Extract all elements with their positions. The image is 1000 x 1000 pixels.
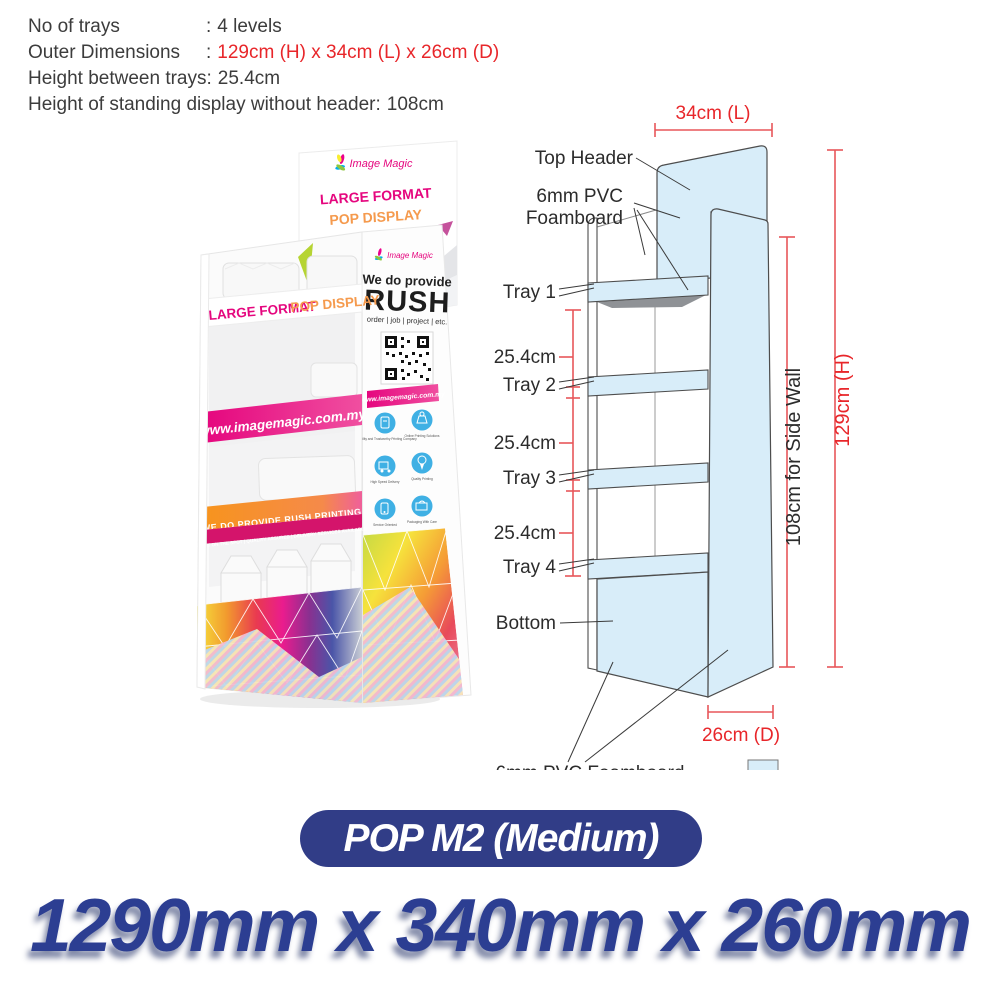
diagram-svg: 34cm (L) Top Header 6mm PVC Foamboard Tr… xyxy=(480,90,900,770)
spec-row-standing-height: Height of standing display without heade… xyxy=(28,92,499,118)
legend: Printable Area xyxy=(748,760,900,770)
spec-separator: : xyxy=(206,14,211,40)
depth-dimension-label: 26cm (D) xyxy=(702,725,780,746)
technical-diagram: 34cm (L) Top Header 6mm PVC Foamboard Tr… xyxy=(480,90,900,770)
side-wall-dimension-label: 108cm for Side Wall xyxy=(783,368,805,546)
legend-swatch xyxy=(748,760,778,770)
foamboard-label-line1: 6mm PVC xyxy=(536,186,623,207)
spec-row-outer-dimensions: Outer Dimensions : 129cm (H) x 34cm (L) … xyxy=(28,40,499,66)
height-dimension-label: 129cm (H) xyxy=(832,353,854,446)
width-dimension-label: 34cm (L) xyxy=(676,103,751,124)
feature-icon: Quality Printing xyxy=(411,453,433,482)
spec-label: Height of standing display without heade… xyxy=(28,92,376,118)
spec-row-trays: No of trays : 4 levels xyxy=(28,14,499,40)
tray-1-label: Tray 1 xyxy=(503,282,556,303)
photo-front-panel: LARGE FORMAT POP DISPLAY www.imagemagic.… xyxy=(196,232,380,703)
spec-value: 108cm xyxy=(387,92,444,118)
spec-list: No of trays : 4 levels Outer Dimensions … xyxy=(28,14,499,118)
spec-row-tray-height: Height between trays : 25.4cm xyxy=(28,66,499,92)
overall-size-text: 1290mm x 340mm x 260mm xyxy=(0,882,1000,968)
foamboard-bottom-label: 6mm PVC Foamboard xyxy=(495,763,684,770)
spec-label: Outer Dimensions xyxy=(28,40,206,66)
spec-value: 25.4cm xyxy=(218,66,280,92)
icon-caption: Packaging With Care xyxy=(407,520,437,524)
spec-label: No of trays xyxy=(28,14,206,40)
product-photo: Image Magic LARGE FORMAT POP DISPLAY Ima… xyxy=(195,135,473,715)
spec-separator: : xyxy=(206,40,211,66)
spec-value: 4 levels xyxy=(217,14,281,40)
front-mosaic xyxy=(197,587,362,703)
icon-caption: Online Printing Solutions xyxy=(405,434,440,438)
top-header-label: Top Header xyxy=(535,148,634,169)
icon-caption: High Speed Delivery xyxy=(370,480,399,484)
spec-separator: : xyxy=(376,92,381,118)
product-pouch xyxy=(311,363,357,397)
tray-4-label: Tray 4 xyxy=(503,557,557,578)
icon-caption: Quality Printing xyxy=(411,477,433,481)
qr-code xyxy=(381,332,433,384)
bottom-label: Bottom xyxy=(496,613,556,634)
product-photo-svg: Image Magic LARGE FORMAT POP DISPLAY Ima… xyxy=(195,135,473,715)
spec-value-outer-dimensions: 129cm (H) x 34cm (L) x 26cm (D) xyxy=(217,40,499,66)
brand-name: Image Magic xyxy=(350,158,413,170)
icon-caption: Service Oriented xyxy=(373,523,397,527)
tray-3-label: Tray 3 xyxy=(503,468,556,489)
tray-gap-label-1: 25.4cm xyxy=(494,347,556,368)
side-brand-name: Image Magic xyxy=(387,251,433,260)
pop-display-spec-sheet: { "specs": { "separator": ":", "rows": [… xyxy=(0,0,1000,1000)
spec-separator: : xyxy=(207,66,212,92)
right-side-wall xyxy=(708,209,773,697)
spec-label: Height between trays xyxy=(28,66,207,92)
tray-2-label: Tray 2 xyxy=(503,375,556,396)
foamboard-label-line2: Foamboard xyxy=(526,208,623,229)
model-badge-text: POP M2 (Medium) xyxy=(343,810,658,867)
tray-gap-label-3: 25.4cm xyxy=(494,523,556,544)
model-badge: POP M2 (Medium) xyxy=(300,810,702,867)
tray-gap-label-2: 25.4cm xyxy=(494,433,556,454)
